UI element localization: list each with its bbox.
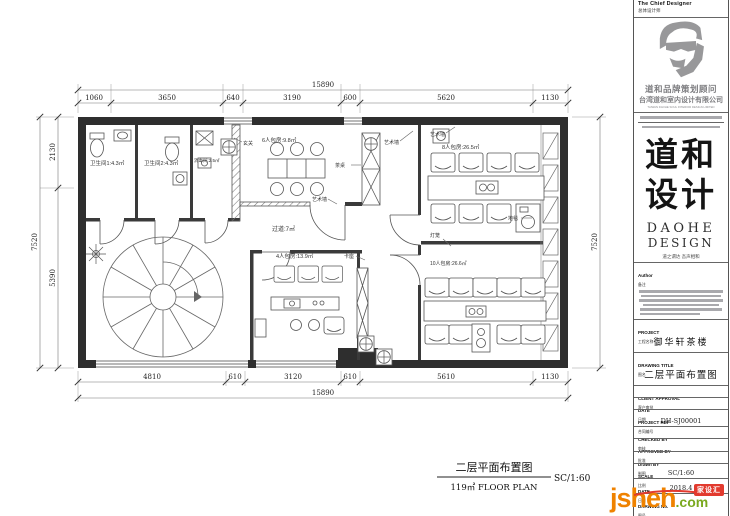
- brand-line1: 道和品牌策划顾问: [638, 83, 724, 95]
- label-tea-table: 茶桌: [335, 162, 345, 169]
- label-foyer: 玄关: [243, 140, 253, 147]
- row-drawn-by: Drawn BY 制图: [634, 451, 728, 463]
- designer-portrait-logo: [634, 18, 728, 82]
- label-corridor: 过道:7㎡: [272, 225, 295, 233]
- brand-line2: 台湾道和室内设计有限公司: [638, 95, 724, 105]
- chief-designer-en: The Chief Designer: [638, 1, 724, 7]
- drawing-title-value: 二层平面布置图: [634, 367, 728, 381]
- logo-cn-2: 设计: [638, 175, 724, 215]
- brand-en: TAIWAN DAOHE SOUL INTERIOR DESIGN LIMITE…: [647, 105, 716, 108]
- dim-left-total: 7520: [31, 233, 39, 251]
- logo-cn-1: 道和: [638, 135, 724, 175]
- label-lantern: 灯笼: [430, 232, 440, 239]
- author-label-cn: 备注: [638, 282, 711, 287]
- drawing-footer: 二层平面布置图 SC/1:60 119㎡ FLOOR PLAN: [437, 461, 591, 493]
- label-art-wall-1: 艺术墙: [384, 139, 399, 146]
- floor-plan-svg: 15890 1060 3650 640 3190 600 5620 1130 4…: [0, 0, 633, 516]
- dim-bot-2: 610: [228, 373, 241, 381]
- brand-name-block: 道和品牌策划顾问 台湾道和室内设计有限公司 TAIWAN DAOHE SOUL …: [634, 82, 728, 112]
- dim-bot-4: 610: [343, 373, 356, 381]
- label-sterilize: 消毒间:2.5㎡: [194, 157, 220, 164]
- daohe-logotype: 道和 设计: [634, 134, 728, 220]
- row-project-ref: PROJECT REF 合同编号 DH-SJ00001: [634, 409, 728, 426]
- project-name: 御华轩茶楼: [634, 335, 728, 348]
- label-art-wall-3: 艺术墙: [430, 131, 445, 138]
- room-labels: 卫生间1:4.3㎡ 卫生间2:4.3㎡ 消毒间:2.5㎡ 6人包房:9.8㎡ 8…: [90, 136, 480, 267]
- row-scale: SCALE 比例 SC/1:60: [634, 463, 728, 478]
- footer-plan-area: 119㎡ FLOOR PLAN: [451, 483, 539, 493]
- scale-value: SC/1:60: [634, 469, 728, 477]
- dim-bot-3: 3120: [284, 373, 302, 381]
- logo-en-2: DESIGN: [638, 236, 724, 250]
- daohe-latin: DAOHE DESIGN: [634, 220, 728, 253]
- row-client-approval: CLIENT APPROVAL 客户审批: [634, 385, 728, 397]
- dim-bot-6: 1130: [541, 373, 559, 381]
- label-art-wall-2: 艺术墙: [312, 196, 327, 203]
- dim-top-6: 5620: [437, 94, 455, 102]
- dim-top-2: 3650: [158, 94, 176, 102]
- label-carpet: 地毯: [508, 215, 518, 222]
- plant-symbol: [86, 244, 106, 264]
- dim-left-2: 5390: [49, 269, 57, 287]
- label-room10: 10人包房:26.6㎡: [430, 260, 467, 267]
- dim-bottom-total: 15890: [312, 389, 334, 397]
- row-approved-by: APPROVED BY 批准: [634, 438, 728, 451]
- drawing-title-section: DRAWING TITLE 图名 二层平面布置图: [634, 353, 728, 385]
- contact-block: [634, 113, 728, 134]
- project-section: PROJECT 工程名称 御华轩茶楼: [634, 320, 728, 352]
- dim-top-4: 3190: [283, 94, 301, 102]
- doors: [100, 205, 420, 285]
- label-room8: 8人包房:26.5㎡: [442, 143, 480, 151]
- dim-top-7: 1130: [541, 94, 559, 102]
- row-date-1: DATE 日期: [634, 397, 728, 409]
- spiral-staircase: [103, 237, 223, 357]
- project-ref-value: DH-SJ00001: [634, 417, 728, 425]
- title-block: The Chief Designer 总体设计师 道和品牌策划顾问 台湾道和室内…: [633, 0, 729, 516]
- dim-top-1: 1060: [85, 94, 103, 102]
- dim-bot-1: 4810: [143, 373, 161, 381]
- watermark-swoosh-icon: [634, 487, 700, 497]
- dim-left-1: 2130: [49, 143, 57, 161]
- label-wc2: 卫生间2:4.3㎡: [144, 159, 179, 167]
- dim-right-total: 7520: [591, 233, 599, 251]
- chief-designer: The Chief Designer 总体设计师: [634, 0, 728, 17]
- floor-plan-area: 15890 1060 3650 640 3190 600 5620 1130 4…: [0, 0, 633, 516]
- label-booth-seat: 卡座: [344, 253, 354, 260]
- notes-section: Author 备注: [634, 263, 728, 319]
- footer-plan-title: 二层平面布置图: [456, 461, 533, 474]
- face-logo-icon: [654, 19, 708, 79]
- label-room6: 6人包房:9.8㎡: [262, 136, 297, 144]
- watermark-badge: 家设汇: [694, 484, 724, 496]
- dim-top-3: 640: [226, 94, 239, 102]
- author-label: Author: [638, 273, 653, 278]
- dim-bot-5: 5610: [437, 373, 455, 381]
- dim-top-total: 15890: [312, 81, 334, 89]
- shaft-columns: [357, 133, 380, 338]
- chief-designer-cn: 总体设计师: [638, 7, 715, 13]
- dim-top-5: 600: [343, 94, 356, 102]
- watermark-jsheh: jsheh.com 家设汇: [610, 483, 728, 515]
- label-room4: 4人包房:13.9㎡: [276, 252, 314, 260]
- logo-en-1: DAOHE: [638, 221, 724, 236]
- brand-slogan: 道之谓达 吾声相和: [634, 253, 728, 262]
- blueprint-sheet: 15890 1060 3650 640 3190 600 5620 1130 4…: [0, 0, 730, 516]
- footer-scale: SC/1:60: [554, 474, 591, 484]
- label-wc1: 卫生间1:4.3㎡: [90, 159, 125, 167]
- row-checked-by: CHECKED BY 审核: [634, 426, 728, 438]
